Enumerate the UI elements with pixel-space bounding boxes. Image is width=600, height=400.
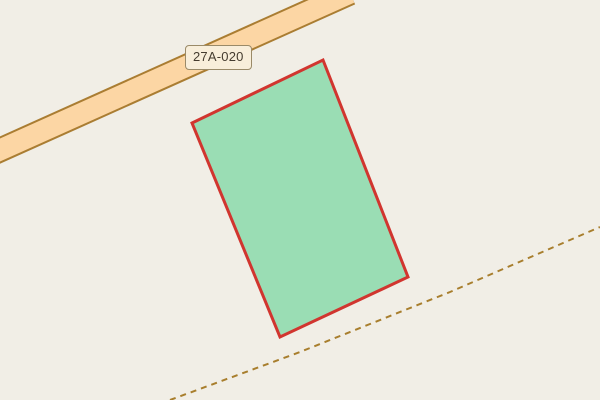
road-ref-label: 27A-020 <box>185 45 252 70</box>
map-svg <box>0 0 600 400</box>
map-canvas[interactable]: 27A-020 <box>0 0 600 400</box>
